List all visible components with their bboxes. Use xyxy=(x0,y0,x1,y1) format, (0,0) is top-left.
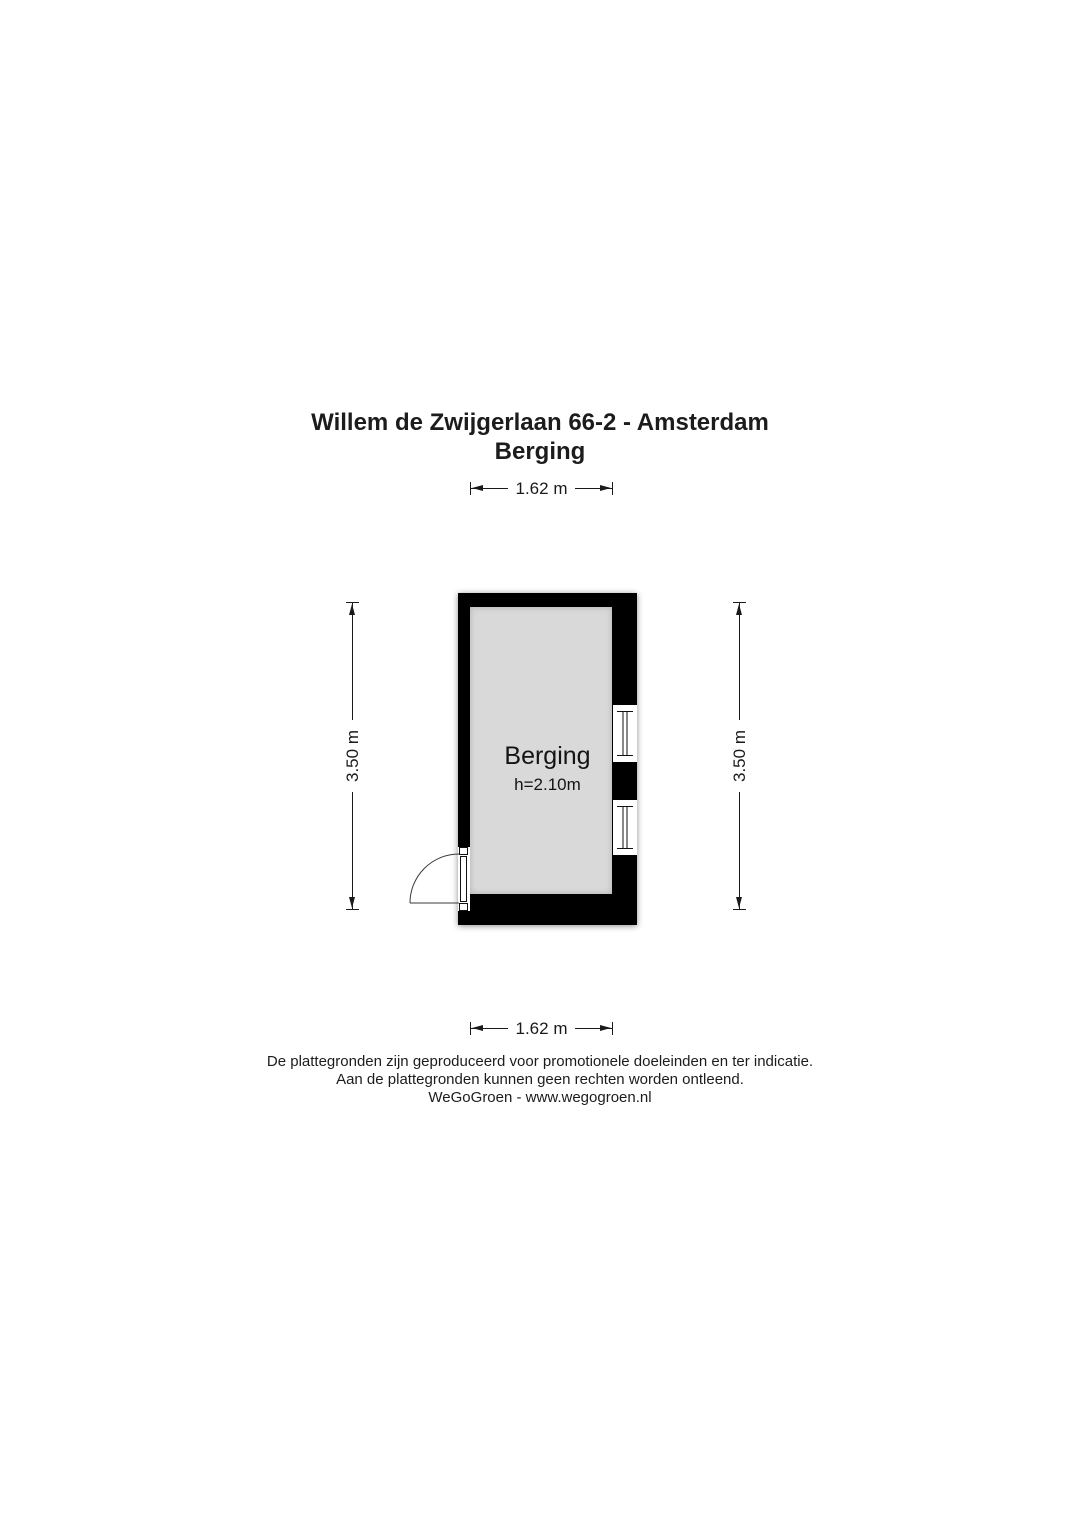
dimension-end-tick xyxy=(470,482,471,495)
arrow-down-icon xyxy=(736,897,742,908)
dimension-end-tick xyxy=(346,909,359,910)
arrow-down-icon xyxy=(349,897,355,908)
arrow-left-icon xyxy=(472,1025,483,1031)
window-right-top xyxy=(613,705,637,762)
window-frame-cap xyxy=(617,848,633,849)
dimension-end-tick xyxy=(733,602,746,603)
footer-credit: WeGoGroen - www.wegogroen.nl xyxy=(0,1089,1080,1107)
dimension-bottom: 1.62 m xyxy=(470,1022,613,1035)
window-glass-icon xyxy=(623,806,628,849)
dimension-left: 3.50 m xyxy=(346,602,359,910)
window-frame-cap xyxy=(617,806,633,807)
dimension-bottom-label: 1.62 m xyxy=(508,1019,576,1039)
dimension-end-tick xyxy=(733,909,746,910)
page-title: Willem de Zwijgerlaan 66-2 - Amsterdam B… xyxy=(0,408,1080,466)
dimension-right: 3.50 m xyxy=(733,602,746,910)
arrow-right-icon xyxy=(600,1025,611,1031)
page-title-room: Berging xyxy=(0,437,1080,466)
arrow-up-icon xyxy=(736,604,742,615)
dimension-end-tick xyxy=(470,1022,471,1035)
arrow-up-icon xyxy=(349,604,355,615)
page-title-address: Willem de Zwijgerlaan 66-2 - Amsterdam xyxy=(0,408,1080,437)
floorplan-page: Willem de Zwijgerlaan 66-2 - Amsterdam B… xyxy=(0,0,1080,1527)
dimension-end-tick xyxy=(612,1022,613,1035)
dimension-top: 1.62 m xyxy=(470,482,613,495)
arrow-right-icon xyxy=(600,485,611,491)
room-label: Berging h=2.10m xyxy=(458,743,637,796)
window-frame-cap xyxy=(617,755,633,756)
dimension-end-tick xyxy=(346,602,359,603)
arrow-left-icon xyxy=(472,485,483,491)
disclaimer-line-1: De plattegronden zijn geproduceerd voor … xyxy=(0,1053,1080,1071)
dimension-left-label: 3.50 m xyxy=(343,720,363,792)
dimension-right-label: 3.50 m xyxy=(730,720,750,792)
room-height-label: h=2.10m xyxy=(458,774,637,796)
door-swing-arc xyxy=(400,840,470,915)
window-right-bottom xyxy=(613,800,637,855)
room-name-label: Berging xyxy=(458,743,637,770)
footer-disclaimer: De plattegronden zijn geproduceerd voor … xyxy=(0,1053,1080,1107)
dimension-top-label: 1.62 m xyxy=(508,479,576,499)
disclaimer-line-2: Aan de plattegronden kunnen geen rechten… xyxy=(0,1071,1080,1089)
window-frame-cap xyxy=(617,711,633,712)
window-glass-icon xyxy=(623,711,628,756)
dimension-end-tick xyxy=(612,482,613,495)
floorplan-berging: Berging h=2.10m xyxy=(458,593,637,925)
